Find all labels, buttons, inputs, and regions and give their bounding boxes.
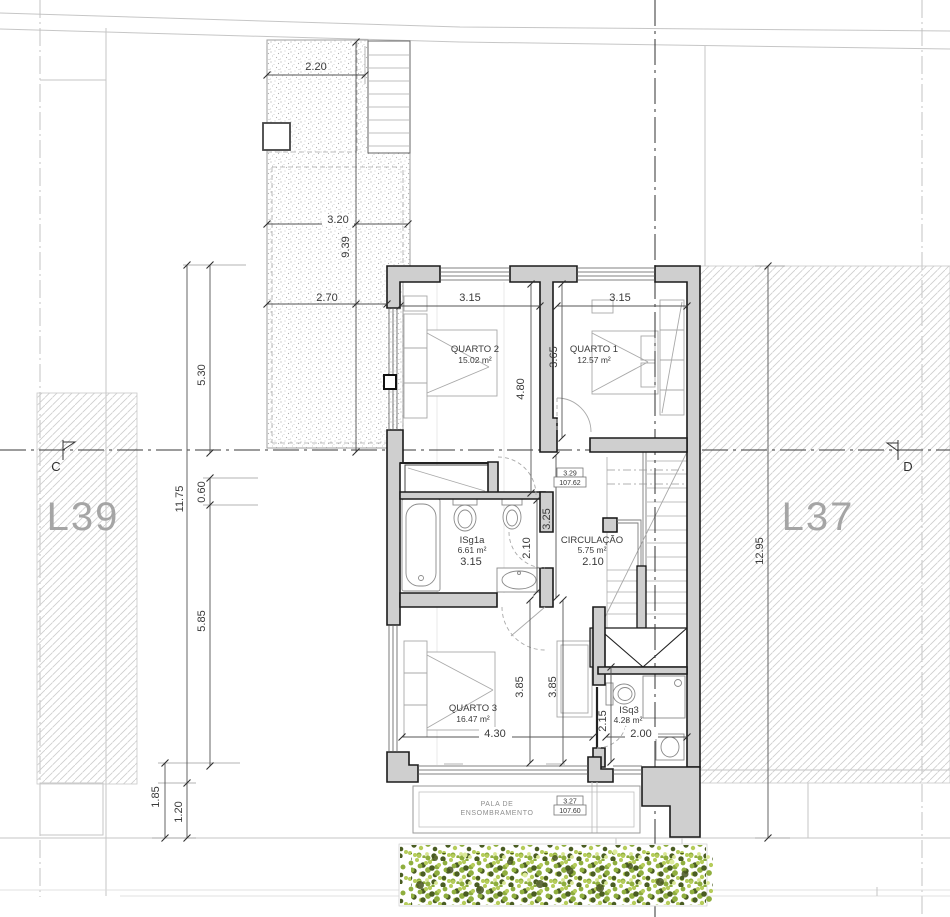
- room-area-quarto3: 16.47 m²: [456, 714, 490, 724]
- level-pala-elevation: 107.60: [559, 808, 581, 815]
- dim-right-total: 12.95: [754, 537, 766, 565]
- dim-terrace-mid: 3.20: [327, 214, 348, 226]
- dim-q2-width: 3.15: [459, 292, 480, 304]
- pala-side-lines: [592, 782, 597, 833]
- room-label-quarto1: QUARTO 1: [570, 344, 618, 355]
- room-label-quarto2: QUARTO 2: [451, 344, 499, 355]
- pala-label-line1: PALA DE: [481, 801, 514, 808]
- dim-q1-width: 3.15: [609, 292, 630, 304]
- door-leaf-quarto3: [511, 607, 545, 636]
- section-letter-d: D: [903, 459, 912, 474]
- dim-q3-depth-right: 3.85: [547, 676, 559, 697]
- terrace-chimney: [263, 123, 290, 150]
- pier-bottom-right: [642, 767, 700, 837]
- wall-divider-lower: [540, 568, 553, 607]
- dim-terrace-low: 2.70: [316, 292, 337, 304]
- floor-plan-page: C D: [0, 0, 950, 917]
- hedge: [399, 844, 713, 906]
- level-marker-pala: 3.27 107.60: [554, 796, 586, 815]
- wall-pilaster-west: [384, 375, 396, 389]
- wall-q3-top: [400, 593, 497, 607]
- dim-isq3-width: 2.00: [630, 728, 651, 740]
- room-area-quarto2: 15.02 m²: [458, 355, 492, 365]
- pier-bottom-left: [387, 752, 418, 782]
- dim-q3-depth-left: 3.85: [514, 676, 526, 697]
- level-hall-value: 3.29: [563, 471, 577, 478]
- dim-isq3-depth: 2.15: [597, 710, 609, 731]
- door-arc-quarto3: [502, 607, 545, 650]
- dim-isg1a-depth: 2.10: [521, 537, 533, 558]
- window-q3-west: [389, 625, 397, 752]
- dim-left-total: 11.75: [174, 486, 186, 513]
- dim-q2-depth: 4.80: [515, 378, 527, 399]
- dim-terrace-top: 2.20: [305, 61, 326, 73]
- dim-terrace-height: 9.39: [340, 236, 352, 257]
- floor-plan-canvas: C D: [0, 0, 950, 917]
- room-area-circulacao: 5.75 m²: [578, 545, 607, 555]
- room-area-quarto1: 12.57 m²: [577, 355, 611, 365]
- wall-isg1a-top: [400, 492, 545, 499]
- room-area-isg1a: 6.61 m²: [458, 545, 487, 555]
- dim-isg1a-width: 3.15: [460, 556, 481, 568]
- lot-hatch-left: [37, 393, 137, 784]
- dim-left-upper: 5.30: [196, 364, 208, 385]
- level-marker-hall: 3.29 107.62: [554, 468, 586, 487]
- dim-left-mid: 0.60: [196, 481, 208, 502]
- dim-left-lower: 5.85: [196, 610, 208, 631]
- duct-column: [603, 518, 617, 532]
- pala-label-line2: ENSOMBRAMENTO: [460, 810, 533, 817]
- dim-hall-depth: 3.25: [541, 508, 553, 529]
- dim-q3-width: 4.30: [484, 728, 505, 740]
- level-pala-value: 3.27: [563, 799, 577, 806]
- window-q2-north: [440, 268, 510, 280]
- lot-label-right: L37: [782, 495, 855, 539]
- window-q3-south: [418, 766, 588, 774]
- dim-bottom-left-inner: 1.20: [173, 801, 185, 822]
- closet-quarto1: [660, 300, 684, 415]
- dim-bottom-left-outer: 1.85: [150, 786, 162, 807]
- lot-label-left: L39: [47, 495, 120, 539]
- room-label-quarto3: QUARTO 3: [449, 703, 497, 714]
- wall-top-center-partition: [510, 266, 577, 452]
- window-q1-north: [577, 268, 655, 280]
- stair-handrail-wall: [637, 566, 646, 628]
- terrace-stair: [368, 41, 410, 153]
- dim-circ-width: 2.10: [582, 556, 603, 568]
- closet-corridor: [405, 465, 488, 493]
- wall-q1-bottom: [590, 438, 687, 452]
- pala-ensombramento: PALA DE ENSOMBRAMENTO: [413, 786, 640, 833]
- dim-q1-depth: 3.65: [548, 346, 560, 367]
- pier-bottom-center: [588, 757, 613, 782]
- room-area-isq3: 4.28 m²: [614, 715, 643, 725]
- section-letter-c: C: [51, 459, 60, 474]
- level-hall-elevation: 107.62: [559, 480, 581, 487]
- window-south-east: [613, 766, 642, 774]
- desk-quarto3: [557, 641, 592, 717]
